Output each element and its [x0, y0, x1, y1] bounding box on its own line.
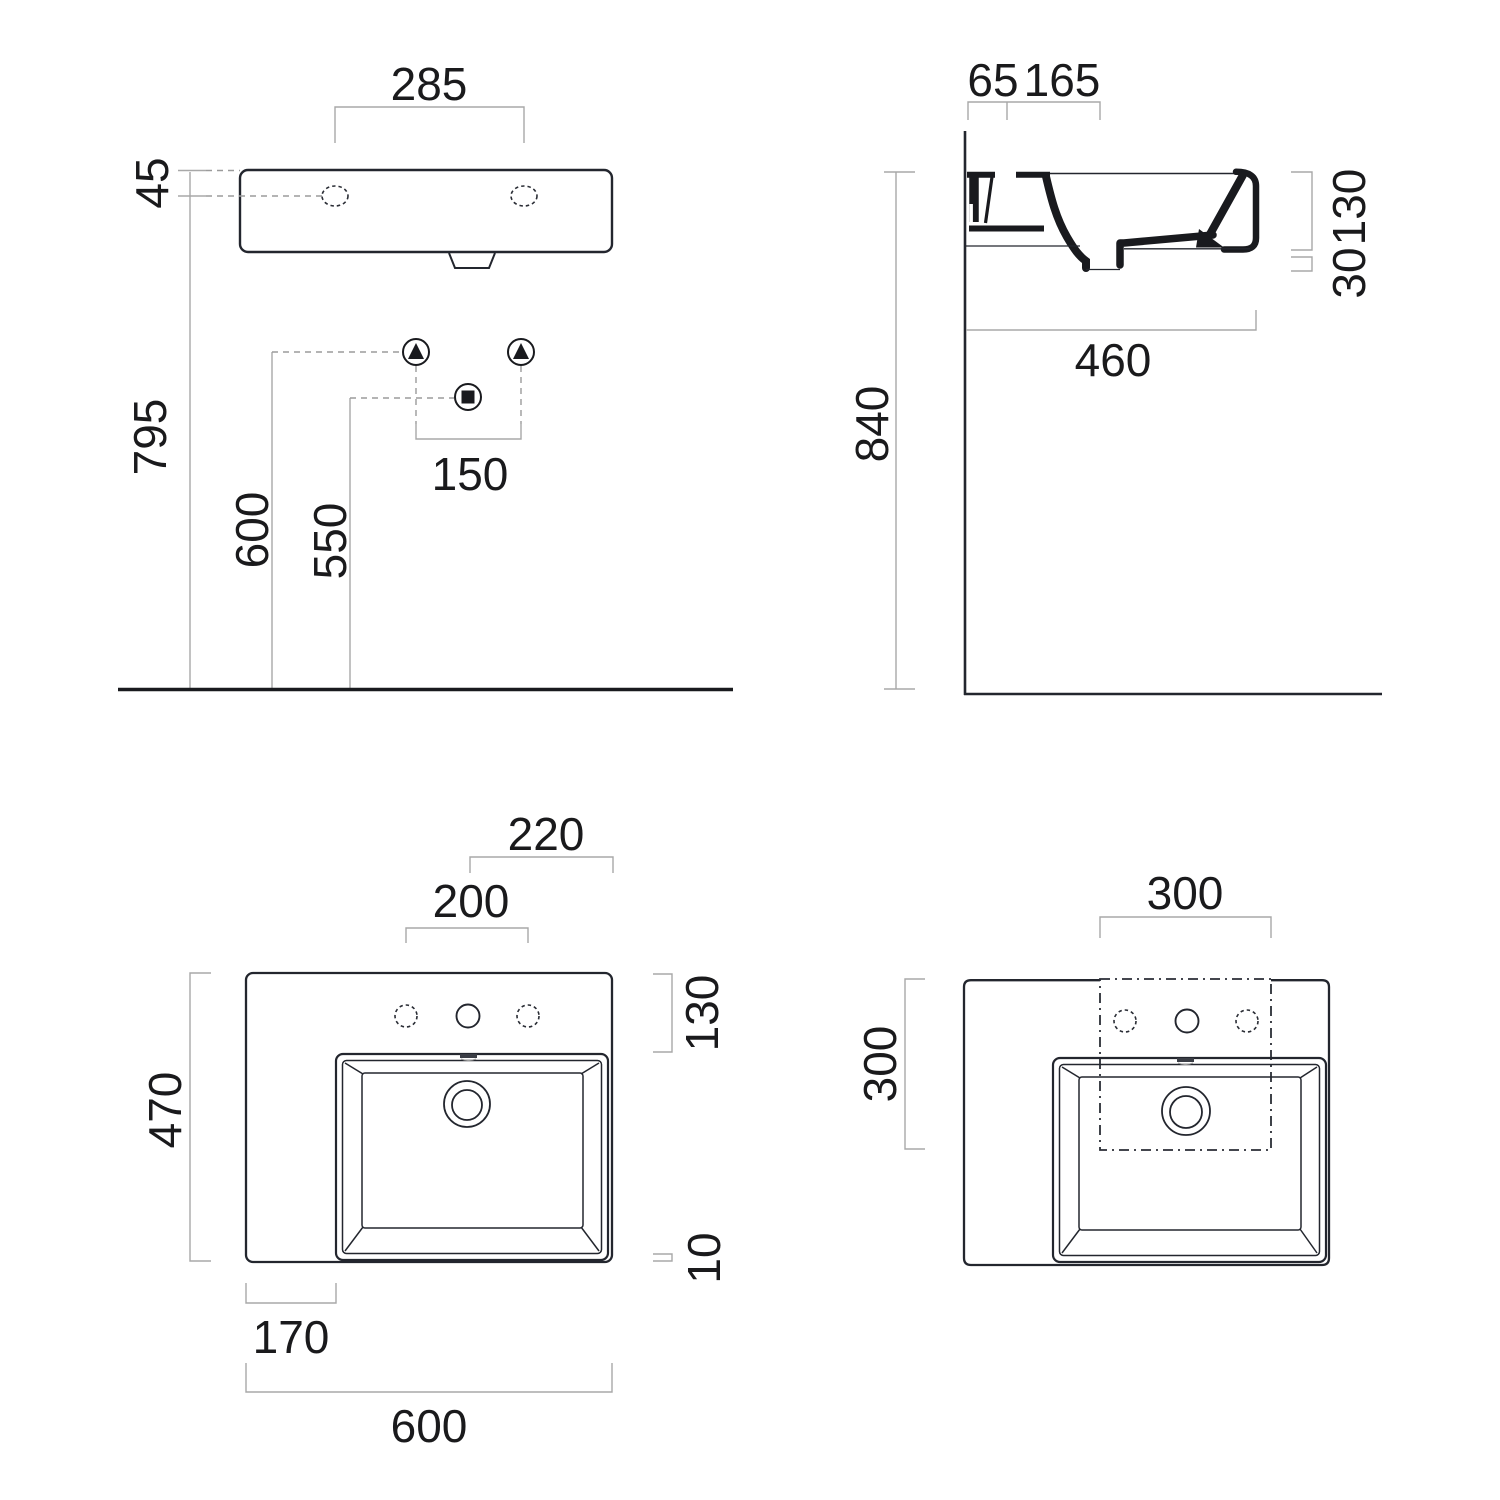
section-fixing-notch [969, 204, 973, 222]
bowl-chamfer-tr [581, 1063, 599, 1074]
dim-130-plan: 130 [676, 975, 728, 1052]
cutout-bowl-bottom [1079, 1077, 1301, 1230]
plan-bowl [336, 1054, 608, 1260]
dim-300-width-bracket [1100, 917, 1271, 938]
dim-200-bracket [406, 928, 528, 943]
section-front-inner-slope [1209, 175, 1243, 236]
cutout-bowl [1053, 1058, 1326, 1262]
dim-10-bracket [653, 1254, 672, 1261]
dim-170: 170 [253, 1311, 330, 1363]
dim-600-height: 600 [226, 492, 278, 569]
dim-300-width: 300 [1147, 867, 1224, 919]
dim-200: 200 [433, 875, 510, 927]
section-tap-deck-edge [986, 177, 993, 223]
section-tap-hole-gap [995, 169, 1016, 180]
dim-600-width: 600 [391, 1400, 468, 1452]
supply-symbol-right [508, 339, 534, 365]
bowl-chamfer-bl [345, 1227, 363, 1251]
dim-285: 285 [391, 58, 468, 110]
section-back-wall [1046, 177, 1086, 269]
plan-tap-hole-right [517, 1005, 539, 1027]
dim-65: 65 [967, 54, 1018, 106]
dim-795: 795 [124, 399, 176, 476]
cutout-chamfer-bl [1062, 1229, 1080, 1253]
cutout-chamfer-tl [1062, 1067, 1080, 1078]
dim-130-side: 130 [1323, 169, 1375, 246]
dim-30: 30 [1323, 247, 1375, 298]
basin-plan-outline [246, 973, 612, 1262]
bowl-chamfer-tl [345, 1063, 363, 1074]
dim-130-bracket-side [1291, 172, 1312, 250]
dim-600-bracket [246, 1363, 612, 1392]
waste-outlet-front [449, 253, 495, 268]
dim-220: 220 [508, 808, 585, 860]
bowl-bottom [362, 1073, 583, 1228]
plan-view: 220 200 470 130 10 [139, 808, 730, 1452]
section-back-wall-notch [1034, 185, 1043, 199]
basin-plan-cutout-outline [964, 980, 1329, 1265]
dim-30-bracket [1291, 257, 1312, 271]
cutout-tap-hole-left [1114, 1010, 1136, 1032]
dim-460-line [966, 310, 1256, 330]
cutout-chamfer-tr [1300, 1067, 1317, 1078]
cutout-drain-inner [1170, 1096, 1202, 1128]
bowl-rim-inner [343, 1061, 602, 1254]
dim-460: 460 [1075, 334, 1152, 386]
tap-hole-left-hidden [322, 186, 348, 206]
technical-drawing-page: 285 45 795 600 550 [0, 0, 1500, 1500]
side-section-view: 65 165 840 [846, 54, 1382, 695]
tap-hole-right-hidden [511, 186, 537, 206]
waste-symbol [455, 384, 481, 410]
dim-165: 165 [1024, 54, 1101, 106]
supply-symbol-left [403, 339, 429, 365]
cutout-chamfer-br [1300, 1229, 1317, 1253]
plan-cutout-view: 300 300 [854, 867, 1329, 1265]
cutout-tap-hole-right [1236, 1010, 1258, 1032]
dim-150: 150 [432, 448, 509, 500]
dim-170-bracket [246, 1283, 336, 1303]
dim-470: 470 [139, 1072, 191, 1149]
dim-550: 550 [304, 503, 356, 580]
cutout-bowl-rim-outer [1053, 1058, 1326, 1262]
section-bowl-bottom [1120, 235, 1213, 265]
dim-130-bracket-plan [653, 974, 672, 1052]
dim-300-depth: 300 [854, 1026, 906, 1103]
washbasin-dimension-drawing: 285 45 795 600 550 [0, 0, 1500, 1500]
dim-285-bracket [335, 107, 524, 143]
dim-300-depth-bracket [905, 979, 925, 1149]
plan-tap-hole-centre [457, 1005, 480, 1028]
dim-150-bracket [416, 424, 521, 439]
basin-section-profile [966, 169, 1256, 270]
dim-10: 10 [678, 1232, 730, 1283]
basin-front-outline [240, 170, 612, 252]
front-elevation-view: 285 45 795 600 550 [118, 58, 733, 690]
bowl-rim-outer [336, 1054, 608, 1260]
dim-45: 45 [126, 157, 178, 208]
drain-inner [452, 1090, 482, 1120]
dim-470-bracket [190, 973, 211, 1261]
dim-840: 840 [846, 386, 898, 463]
bowl-chamfer-br [581, 1227, 599, 1251]
cutout-bowl-rim-inner [1060, 1065, 1320, 1256]
cutout-tap-hole-centre [1176, 1010, 1199, 1033]
plan-tap-hole-left [395, 1005, 417, 1027]
